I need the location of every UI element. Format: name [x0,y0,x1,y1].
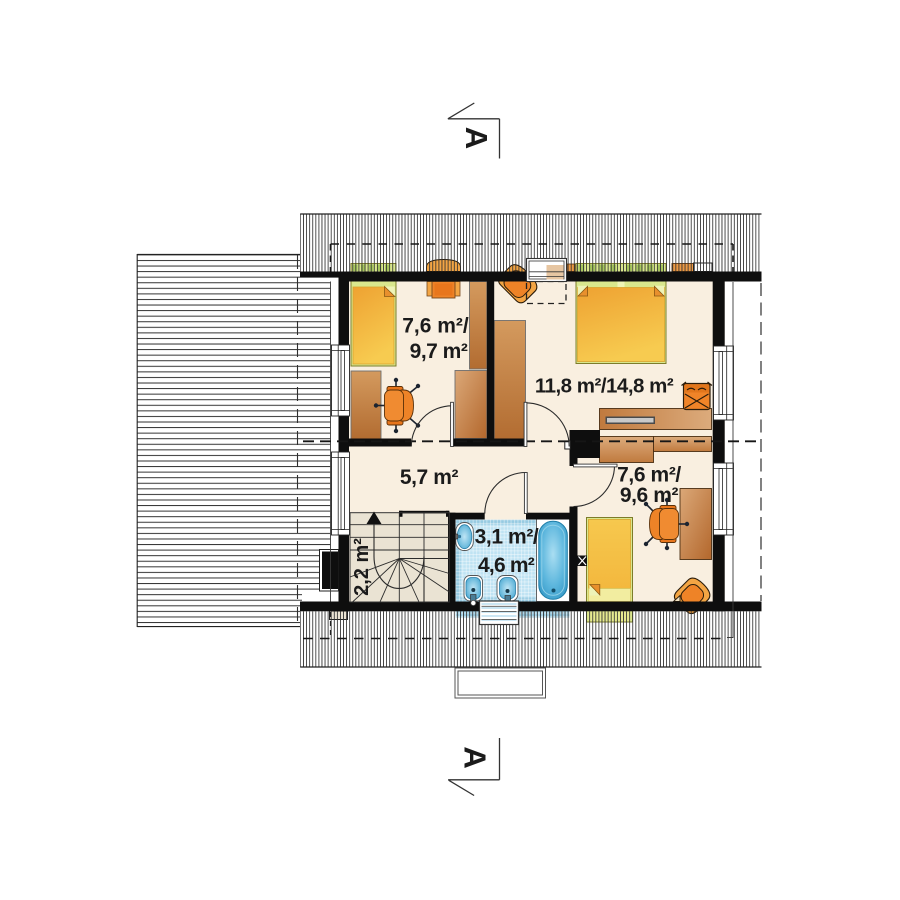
svg-text:9,7 m²: 9,7 m² [410,340,468,363]
svg-text:2,2 m²: 2,2 m² [351,538,373,596]
svg-text:3,1 m²/: 3,1 m²/ [475,526,539,549]
svg-text:9,6 m²: 9,6 m² [620,484,679,507]
svg-text:7,6 m²/: 7,6 m²/ [402,315,469,338]
svg-text:11,8 m²/14,8 m²: 11,8 m²/14,8 m² [535,375,674,398]
svg-text:4,6 m²: 4,6 m² [478,554,535,577]
svg-text:A: A [459,127,494,149]
svg-text:5,7 m²: 5,7 m² [400,466,459,489]
svg-text:A: A [458,746,493,768]
